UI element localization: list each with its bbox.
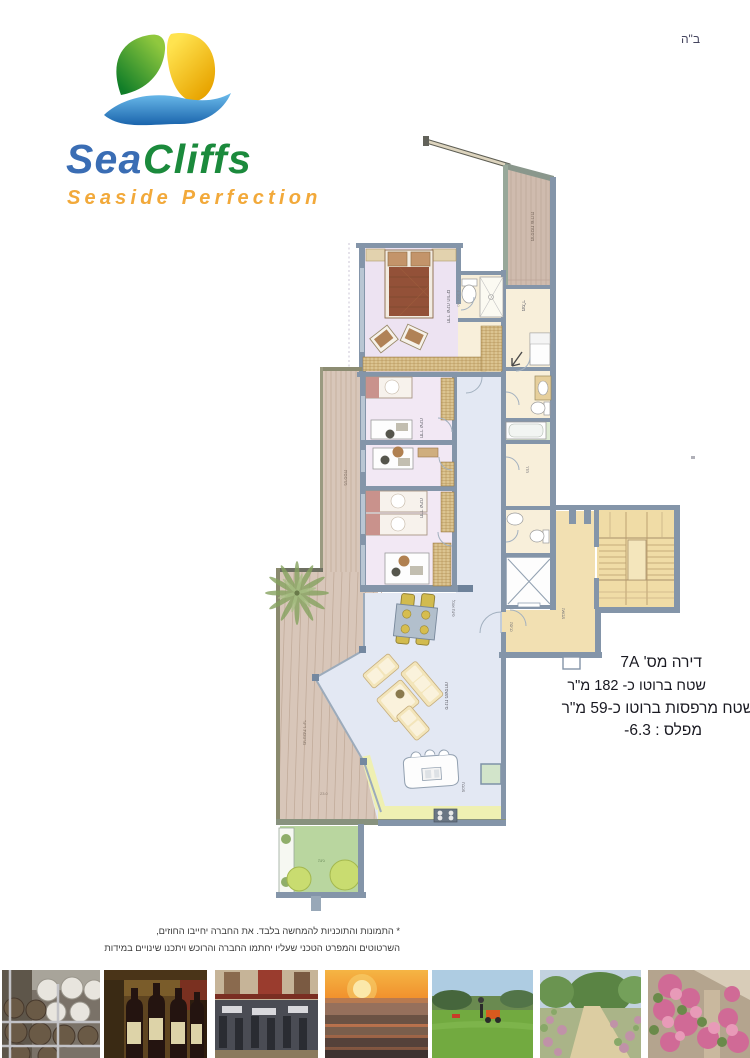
svg-text:מפלס : 6.3-: מפלס : 6.3- — [624, 722, 702, 739]
svg-text:מטבח: מטבח — [461, 782, 466, 793]
svg-text:שטח מרפסות ברוטו כ-59 מ"ר: שטח מרפסות ברוטו כ-59 מ"ר — [562, 700, 750, 717]
svg-text:פינת אוכל: פינת אוכל — [451, 600, 456, 617]
svg-text:4.20/3.60: 4.20/3.60 — [456, 290, 461, 307]
svg-text:פינת משפחה: פינת משפחה — [443, 682, 449, 710]
svg-text:דירה מס' 7A: דירה מס' 7A — [620, 654, 702, 671]
svg-text:מרפסת דיור: מרפסת דיור — [301, 720, 307, 746]
svg-text:גינה: גינה — [318, 858, 325, 863]
svg-text:כניסה: כניסה — [509, 622, 514, 632]
svg-text:מבואה: מבואה — [561, 608, 566, 619]
svg-text:השרטוטים והמפרט הטכני שעליו יח: השרטוטים והמפרט הטכני שעליו יחתמו החברה … — [104, 942, 400, 953]
svg-text:Seaside Perfection: Seaside Perfection — [67, 187, 322, 209]
svg-text:23.0: 23.0 — [320, 791, 329, 796]
svg-text:* התמונות והתוכניות להמחשה בלב: * התמונות והתוכניות להמחשה בלבד. את החבר… — [156, 925, 400, 936]
svg-text:מרפסת שירות: מרפסת שירות — [529, 212, 535, 242]
svg-text:חדר שינה: חדר שינה — [418, 418, 424, 438]
svg-text:חדר שינה: חדר שינה — [418, 498, 424, 518]
svg-text:שטח ברוטו כ- 182 מ"ר: שטח ברוטו כ- 182 מ"ר — [567, 678, 706, 694]
svg-text:ממ"ד: ממ"ד — [520, 300, 526, 312]
svg-text:חדר: חדר — [525, 466, 530, 473]
svg-text:ב"ה: ב"ה — [681, 32, 700, 46]
svg-text:מרפסת: מרפסת — [342, 470, 348, 486]
svg-text:Sea: Sea — [66, 136, 143, 182]
svg-text:חדר שינה הורים: חדר שינה הורים — [445, 290, 451, 323]
svg-text:Cliffs: Cliffs — [143, 136, 252, 182]
